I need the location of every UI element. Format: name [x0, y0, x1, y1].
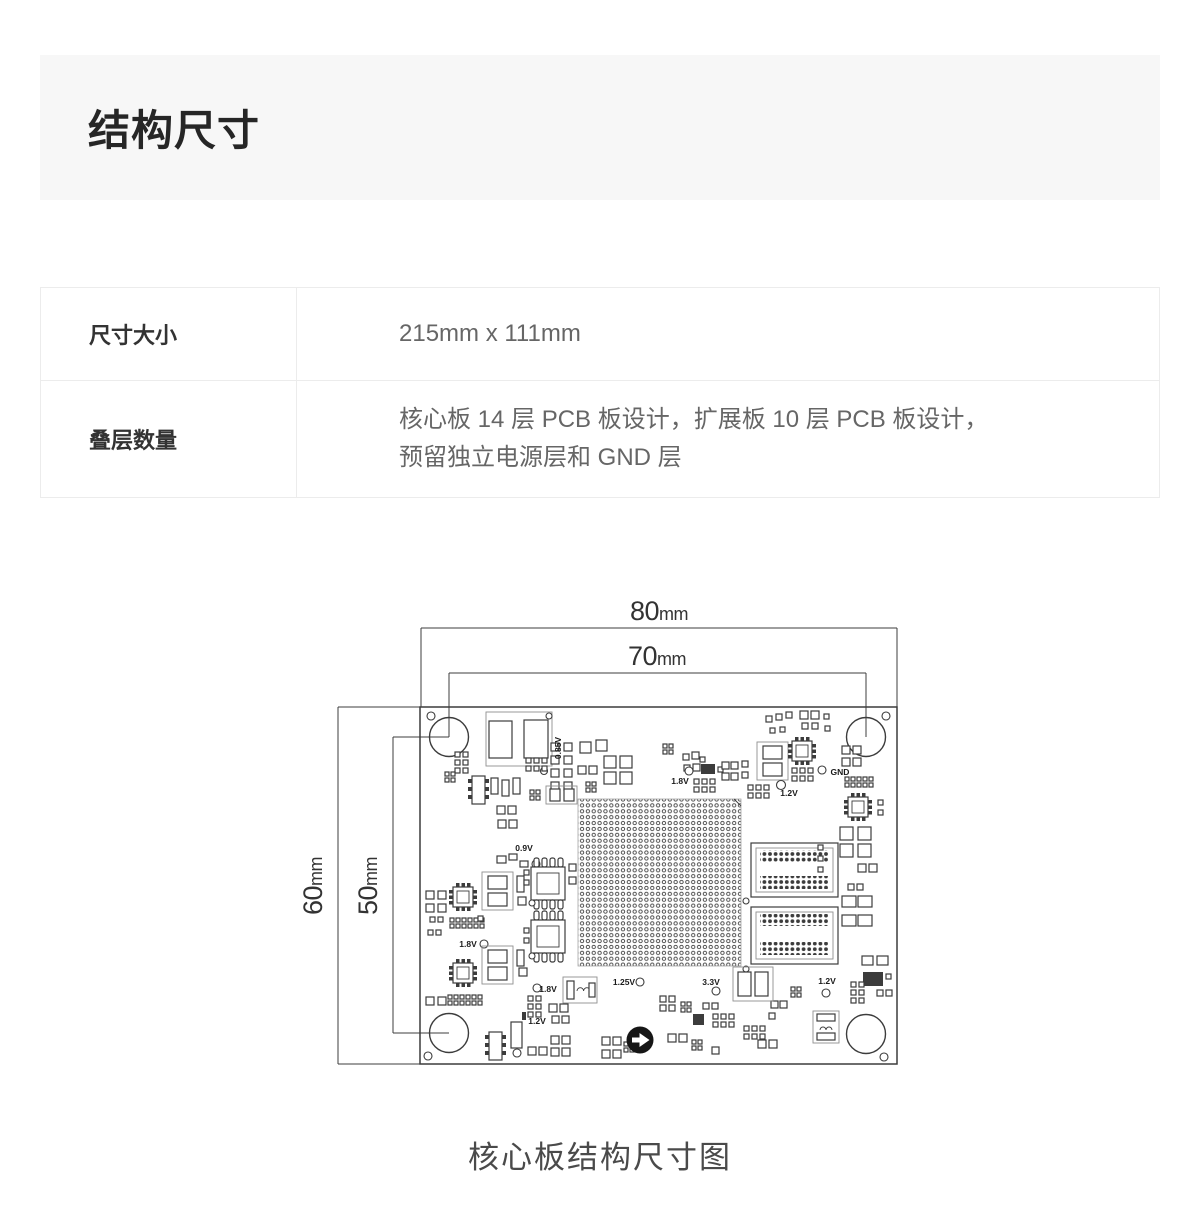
row-value: 核心板 14 层 PCB 板设计，扩展板 10 层 PCB 板设计， 预留独立电… [297, 381, 1159, 497]
spec-table: 尺寸大小 215mm x 111mm 叠层数量 核心板 14 层 PCB 板设计… [40, 287, 1160, 498]
page: 结构尺寸 尺寸大小 215mm x 111mm 叠层数量 核心板 14 层 PC… [0, 0, 1200, 1225]
row-value: 215mm x 111mm [297, 288, 1159, 380]
voltage-label: 0.9V [515, 843, 533, 853]
value-line: 预留独立电源层和 GND 层 [399, 439, 1159, 477]
voltage-label: 0.85V [553, 737, 563, 760]
voltage-label: 1.2V [818, 976, 836, 986]
voltage-label: 1.8V [539, 984, 557, 994]
voltage-label: 3.3V [702, 977, 720, 987]
bga-grid [578, 799, 741, 966]
page-title: 结构尺寸 [88, 97, 260, 158]
voltage-label: 1.25V [613, 977, 636, 987]
value-line: 215mm x 111mm [399, 315, 1159, 353]
table-row-size: 尺寸大小 215mm x 111mm [41, 288, 1159, 381]
voltage-label: 1.8V [459, 939, 477, 949]
section-header: 结构尺寸 [40, 55, 1160, 200]
row-label: 尺寸大小 [41, 288, 297, 380]
voltage-label: 1.2V [780, 788, 798, 798]
connector-1 [743, 843, 838, 904]
voltage-label: 1.2V [528, 1016, 546, 1026]
row-label: 叠层数量 [41, 381, 297, 497]
pcb-diagram: 80mm 70mm 60mm 50mm [280, 585, 940, 1090]
dimension-60mm-label: 60mm [298, 857, 328, 915]
dimension-60mm: 60mm [298, 707, 420, 1064]
dimension-80mm-label: 80mm [630, 596, 688, 626]
value-line: 核心板 14 层 PCB 板设计，扩展板 10 层 PCB 板设计， [399, 401, 1159, 439]
orientation-arrow-icon [627, 1027, 654, 1054]
voltage-label: 1.8V [671, 776, 689, 786]
dimension-70mm-label: 70mm [628, 641, 686, 671]
connector-2 [743, 907, 838, 972]
voltage-label: GND [831, 767, 850, 777]
table-row-stackup: 叠层数量 核心板 14 层 PCB 板设计，扩展板 10 层 PCB 板设计， … [41, 381, 1159, 497]
dimension-50mm-label: 50mm [353, 857, 383, 915]
figure-caption: 核心板结构尺寸图 [0, 1132, 1200, 1177]
